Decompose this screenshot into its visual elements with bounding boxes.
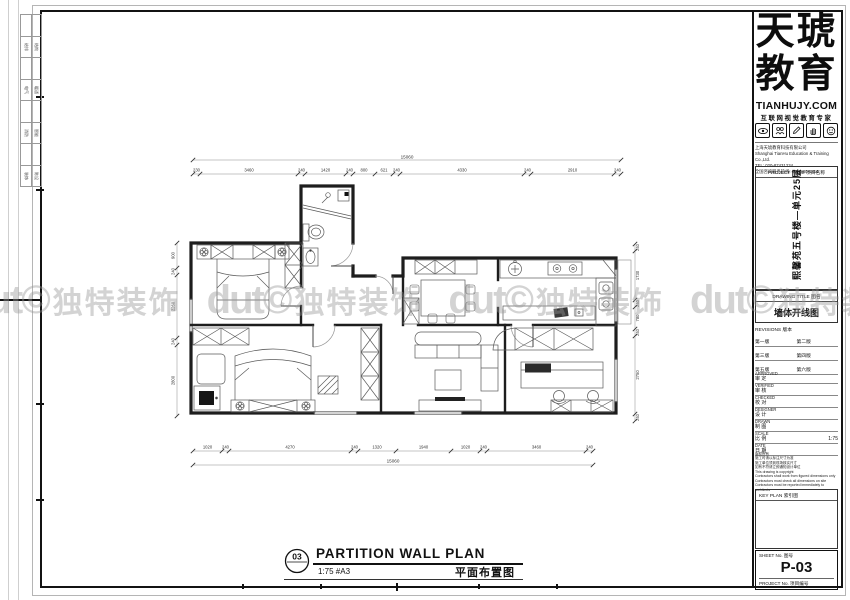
svg-text:240: 240 bbox=[586, 445, 594, 450]
staff-row-approved: APPROVED审 定 bbox=[755, 372, 838, 384]
svg-text:240: 240 bbox=[614, 168, 622, 173]
key-plan-label: KEY PLAN 索引图 bbox=[756, 490, 837, 501]
study-furniture bbox=[521, 362, 613, 412]
caption-title-cn: 平面布置图 bbox=[455, 564, 515, 580]
svg-text:900: 900 bbox=[171, 251, 176, 259]
brand-slogan: 互联网视觉教育专家 bbox=[755, 113, 838, 122]
svg-text:4330: 4330 bbox=[457, 168, 467, 173]
svg-text:240: 240 bbox=[351, 445, 359, 450]
dim-top-total: 15060 bbox=[401, 155, 414, 160]
revisions-label: REVISIONS 版本 bbox=[755, 326, 838, 333]
svg-text:1020: 1020 bbox=[461, 445, 471, 450]
svg-text:4270: 4270 bbox=[285, 445, 295, 450]
staff-row-designer: DESIGNER设 计 bbox=[755, 408, 838, 420]
hand-icon bbox=[806, 123, 821, 138]
caption-bubble: 03 bbox=[284, 548, 310, 574]
caption-baseline bbox=[284, 579, 523, 580]
svg-text:1940: 1940 bbox=[419, 445, 429, 450]
svg-text:2910: 2910 bbox=[568, 168, 578, 173]
windows bbox=[190, 260, 631, 414]
project-no-label: PROJECT No. 项目编号 bbox=[759, 581, 834, 587]
caption-number: 03 bbox=[292, 552, 302, 562]
svg-text:2750: 2750 bbox=[635, 370, 640, 380]
caption-scale: 1:75 #A3 bbox=[318, 567, 350, 576]
brand-icon-row bbox=[755, 123, 838, 138]
brand-line-2: 教育 bbox=[755, 55, 838, 94]
svg-text:780: 780 bbox=[635, 314, 640, 322]
fold-mark-bottom bbox=[396, 583, 398, 591]
eye-icon bbox=[755, 123, 770, 138]
svg-text:240: 240 bbox=[346, 168, 354, 173]
floor-plan: 15060 230 3460 240 1420 240 800 621 240 … bbox=[163, 148, 658, 480]
revision-row: 第一版第二版 bbox=[755, 333, 838, 347]
svg-text:240: 240 bbox=[393, 168, 401, 173]
svg-text:240: 240 bbox=[635, 328, 640, 336]
company-name-en: Shanghai TianHu Education & Training Co.… bbox=[755, 151, 838, 163]
staff-row-scale: SCALE比 例1:75 bbox=[755, 432, 838, 444]
svg-text:1320: 1320 bbox=[372, 445, 382, 450]
cut-tick bbox=[478, 584, 480, 589]
drawing-title-box: DRAWING TITLE 图名 墙体开线图 bbox=[755, 290, 838, 323]
svg-text:240: 240 bbox=[524, 168, 532, 173]
svg-text:2800: 2800 bbox=[171, 375, 176, 385]
bedroom2-furniture bbox=[193, 328, 379, 412]
discipline-strip: 给排结构 电气暖通 消防智能 装饰陈设 bbox=[20, 14, 42, 187]
bedroom1-furniture bbox=[197, 243, 303, 319]
sheet-number: P-03 bbox=[759, 559, 834, 579]
key-plan-box: KEY PLAN 索引图 bbox=[755, 489, 838, 549]
center-fold-line bbox=[0, 299, 40, 301]
dining-furniture bbox=[403, 260, 477, 324]
cut-tick bbox=[556, 584, 558, 589]
brand-line-1: 天琥 bbox=[755, 12, 838, 51]
kitchen-fixtures bbox=[493, 260, 616, 350]
svg-text:1420: 1420 bbox=[321, 168, 331, 173]
people-icon bbox=[772, 123, 787, 138]
titleblock-divider bbox=[752, 10, 754, 586]
notes-block: 版权所有 施工时请以标注尺寸为准 施工单位须到现场核实尺寸 如有不符请立即通知设… bbox=[755, 452, 838, 492]
svg-text:240: 240 bbox=[480, 445, 488, 450]
svg-text:230: 230 bbox=[193, 168, 201, 173]
svg-text:2260: 2260 bbox=[171, 301, 176, 311]
staff-table: APPROVED审 定 VERIFIED审 核 CHECKED校 对 DESIG… bbox=[755, 372, 838, 456]
svg-text:240: 240 bbox=[298, 168, 306, 173]
smiley-icon bbox=[823, 123, 838, 138]
staff-row-verified: VERIFIED审 核 bbox=[755, 384, 838, 396]
svg-text:240: 240 bbox=[171, 267, 176, 275]
drawing-title-label: DRAWING TITLE 图名 bbox=[756, 291, 837, 302]
cut-tick bbox=[320, 584, 322, 589]
svg-text:240: 240 bbox=[171, 337, 176, 345]
sheet-number-box: SHEET No. 图号 P-03 PROJECT No. 项目编号 bbox=[755, 550, 838, 590]
fold-mark bbox=[36, 189, 44, 191]
caption-title: PARTITION WALL PLAN bbox=[316, 546, 485, 561]
revisions-table: 第一版第二版 第三版第四版 第五版第六版 bbox=[755, 333, 838, 375]
svg-text:621: 621 bbox=[381, 168, 389, 173]
project-title-box: PROJECT TITLE 项目名称 熙馨苑五号楼—单元25层 bbox=[755, 166, 838, 290]
revision-row: 第三版第四版 bbox=[755, 347, 838, 361]
drawing-sheet: 给排结构 电气暖通 消防智能 装饰陈设 bbox=[0, 0, 850, 600]
staff-row-checked: CHECKED校 对 bbox=[755, 396, 838, 408]
fold-mark bbox=[36, 499, 44, 501]
svg-text:3460: 3460 bbox=[244, 168, 254, 173]
title-block: 天琥 教育 TIANHUJY.COM 互联网视觉教育专家 上海天琥教育科技有限公… bbox=[755, 10, 838, 585]
svg-text:240: 240 bbox=[635, 413, 640, 421]
svg-text:800: 800 bbox=[361, 168, 369, 173]
svg-text:3460: 3460 bbox=[532, 445, 542, 450]
cut-tick bbox=[242, 584, 244, 589]
pencil-icon bbox=[789, 123, 804, 138]
dim-bottom-total: 15060 bbox=[387, 459, 400, 464]
svg-text:240: 240 bbox=[635, 243, 640, 251]
svg-text:240: 240 bbox=[222, 445, 230, 450]
fold-mark bbox=[36, 403, 44, 405]
svg-text:240: 240 bbox=[635, 299, 640, 307]
svg-text:1730: 1730 bbox=[635, 270, 640, 280]
dimension-labels: 15060 230 3460 240 1420 240 800 621 240 … bbox=[171, 155, 641, 464]
living-furniture bbox=[415, 332, 498, 411]
drawing-title: 墙体开线图 bbox=[756, 302, 837, 319]
brand-website: TIANHUJY.COM bbox=[755, 100, 838, 112]
svg-text:1020: 1020 bbox=[203, 445, 213, 450]
bathroom-fixtures bbox=[303, 190, 351, 266]
project-title: 熙馨苑五号楼—单元25层 bbox=[790, 199, 803, 280]
staff-row-drawn: DRAWN制 图 bbox=[755, 420, 838, 432]
